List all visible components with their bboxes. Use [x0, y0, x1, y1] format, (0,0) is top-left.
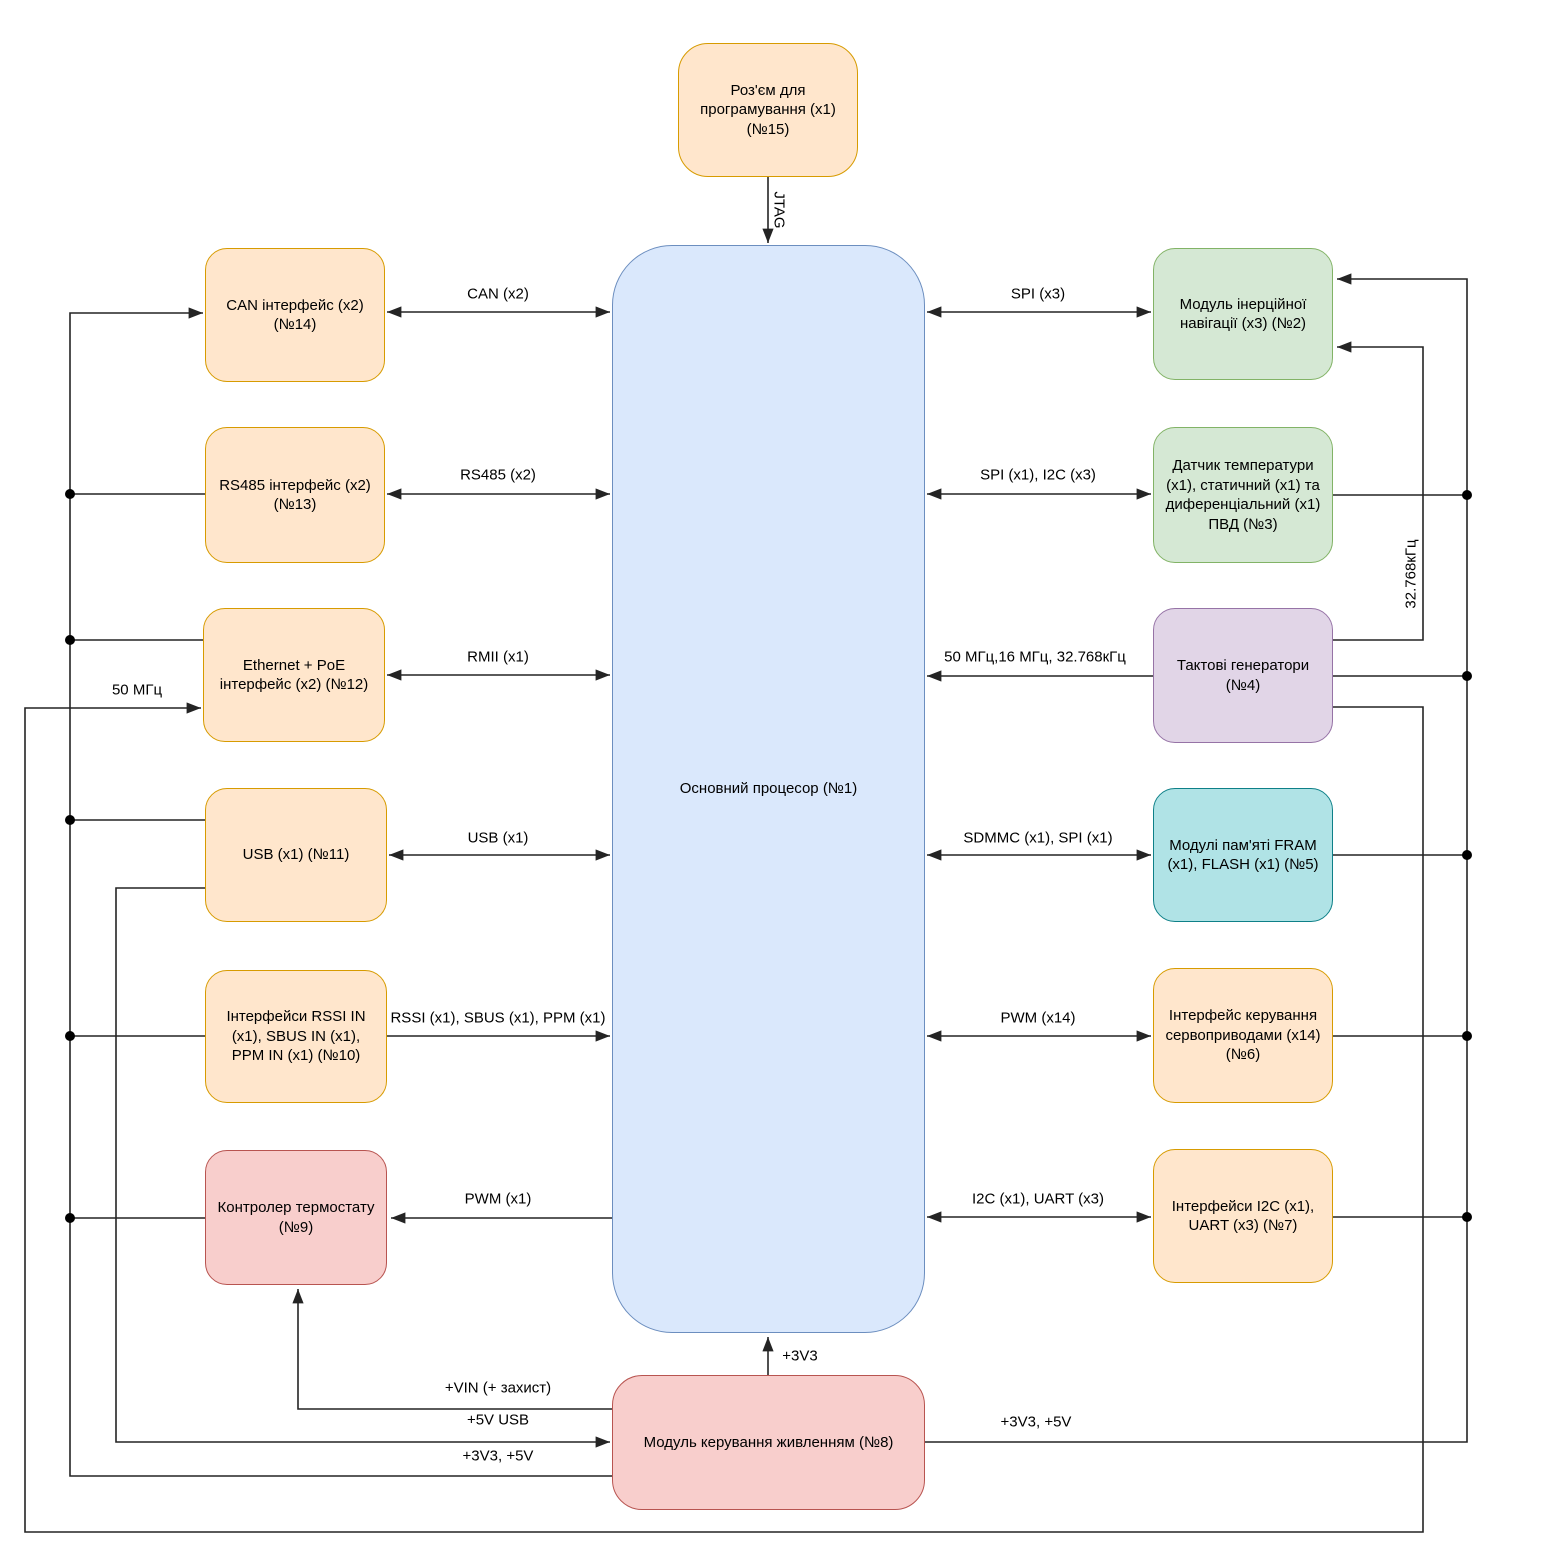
junction-dot	[1462, 490, 1472, 500]
edge-label-rssi: RSSI (x1), SBUS (x1), PPM (x1)	[390, 1010, 605, 1027]
edge-label-pwm1: PWM (x1)	[465, 1191, 532, 1208]
edge-label-50mhz: 50 МГц	[112, 682, 162, 699]
block-programming-connector[interactable]: Роз'єм для програмування (x1) (№15)	[678, 43, 858, 177]
block-label: CAN інтерфейс (x2) (№14)	[214, 296, 376, 335]
block-label: Тактові генератори (№4)	[1162, 656, 1324, 695]
block-label: RS485 інтерфейс (x2) (№13)	[214, 476, 376, 515]
block-label: USB (x1) (№11)	[243, 845, 350, 865]
block-power-management[interactable]: Модуль керування живленням (№8)	[612, 1375, 925, 1510]
block-label: Інтерфейси RSSI IN (x1), SBUS IN (x1), P…	[214, 1007, 378, 1066]
edge-label-clock-freqs: 50 МГц,16 МГц, 32.768кГц	[944, 649, 1126, 666]
block-thermostat-controller[interactable]: Контролер термостату (№9)	[205, 1150, 387, 1285]
junction-dot	[1462, 1031, 1472, 1041]
junction-dot	[65, 489, 75, 499]
junction-dot	[65, 815, 75, 825]
block-ethernet-poe[interactable]: Ethernet + PoE інтерфейс (x2) (№12)	[203, 608, 385, 742]
block-label: Основний процесор (№1)	[680, 779, 858, 799]
edge-label-jtag: JTAG	[771, 191, 788, 228]
block-label: Роз'єм для програмування (x1) (№15)	[687, 81, 849, 140]
junction-dot	[1462, 1212, 1472, 1222]
block-inertial-navigation[interactable]: Модуль інерційної навігації (x3) (№2)	[1153, 248, 1333, 380]
junction-dot	[65, 1031, 75, 1041]
edge-label-3v3-5v-right: +3V3, +5V	[1001, 1414, 1072, 1431]
block-label: Модулі пам'яті FRAM (x1), FLASH (x1) (№5…	[1162, 836, 1324, 875]
edge-label-usb: USB (x1)	[468, 830, 529, 847]
edge-label-sdmmc: SDMMC (x1), SPI (x1)	[963, 830, 1112, 847]
block-servo-control[interactable]: Інтерфейс керування сервоприводами (x14)…	[1153, 968, 1333, 1103]
block-can-interface[interactable]: CAN інтерфейс (x2) (№14)	[205, 248, 385, 382]
edge-label-3v3: +3V3	[782, 1348, 817, 1365]
block-clock-generators[interactable]: Тактові генератори (№4)	[1153, 608, 1333, 743]
block-label: Ethernet + PoE інтерфейс (x2) (№12)	[212, 656, 376, 695]
block-temperature-pressure-sensors[interactable]: Датчик температури (x1), статичний (x1) …	[1153, 427, 1333, 563]
block-label: Контролер термостату (№9)	[214, 1198, 378, 1237]
edge-label-rs485: RS485 (x2)	[460, 467, 536, 484]
edge-label-spi3: SPI (x3)	[1011, 286, 1065, 303]
junction-dot	[1462, 671, 1472, 681]
edge-label-rmii: RMII (x1)	[467, 649, 529, 666]
block-rssi-sbus-ppm[interactable]: Інтерфейси RSSI IN (x1), SBUS IN (x1), P…	[205, 970, 387, 1103]
junction-dot	[65, 1213, 75, 1223]
edge-label-3v3-5v-left: +3V3, +5V	[463, 1448, 534, 1465]
edge-label-pwm14: PWM (x14)	[1001, 1010, 1076, 1027]
block-main-processor[interactable]: Основний процесор (№1)	[612, 245, 925, 1333]
block-i2c-uart-interfaces[interactable]: Інтерфейси I2C (x1), UART (x3) (№7)	[1153, 1149, 1333, 1283]
block-diagram-canvas: Роз'єм для програмування (x1) (№15) Осно…	[0, 0, 1544, 1550]
block-label: Модуль керування живленням (№8)	[644, 1433, 894, 1453]
block-label: Інтерфейси I2C (x1), UART (x3) (№7)	[1162, 1197, 1324, 1236]
block-rs485-interface[interactable]: RS485 інтерфейс (x2) (№13)	[205, 427, 385, 563]
edge-label-vin: +VIN (+ захист)	[445, 1380, 551, 1397]
junction-dot	[65, 635, 75, 645]
block-memory-modules[interactable]: Модулі пам'яті FRAM (x1), FLASH (x1) (№5…	[1153, 788, 1333, 922]
edge-label-spi-i2c: SPI (x1), I2C (x3)	[980, 467, 1096, 484]
block-usb[interactable]: USB (x1) (№11)	[205, 788, 387, 922]
junction-dot	[1462, 850, 1472, 860]
block-label: Інтерфейс керування сервоприводами (x14)…	[1162, 1006, 1324, 1065]
edge-label-5v-usb: +5V USB	[467, 1412, 529, 1429]
block-label: Датчик температури (x1), статичний (x1) …	[1162, 456, 1324, 534]
block-label: Модуль інерційної навігації (x3) (№2)	[1162, 295, 1324, 334]
edge-label-i2c-uart: I2C (x1), UART (x3)	[972, 1191, 1104, 1208]
edge-label-can: CAN (x2)	[467, 286, 529, 303]
edge-label-32768khz: 32.768кГц	[1403, 539, 1420, 608]
